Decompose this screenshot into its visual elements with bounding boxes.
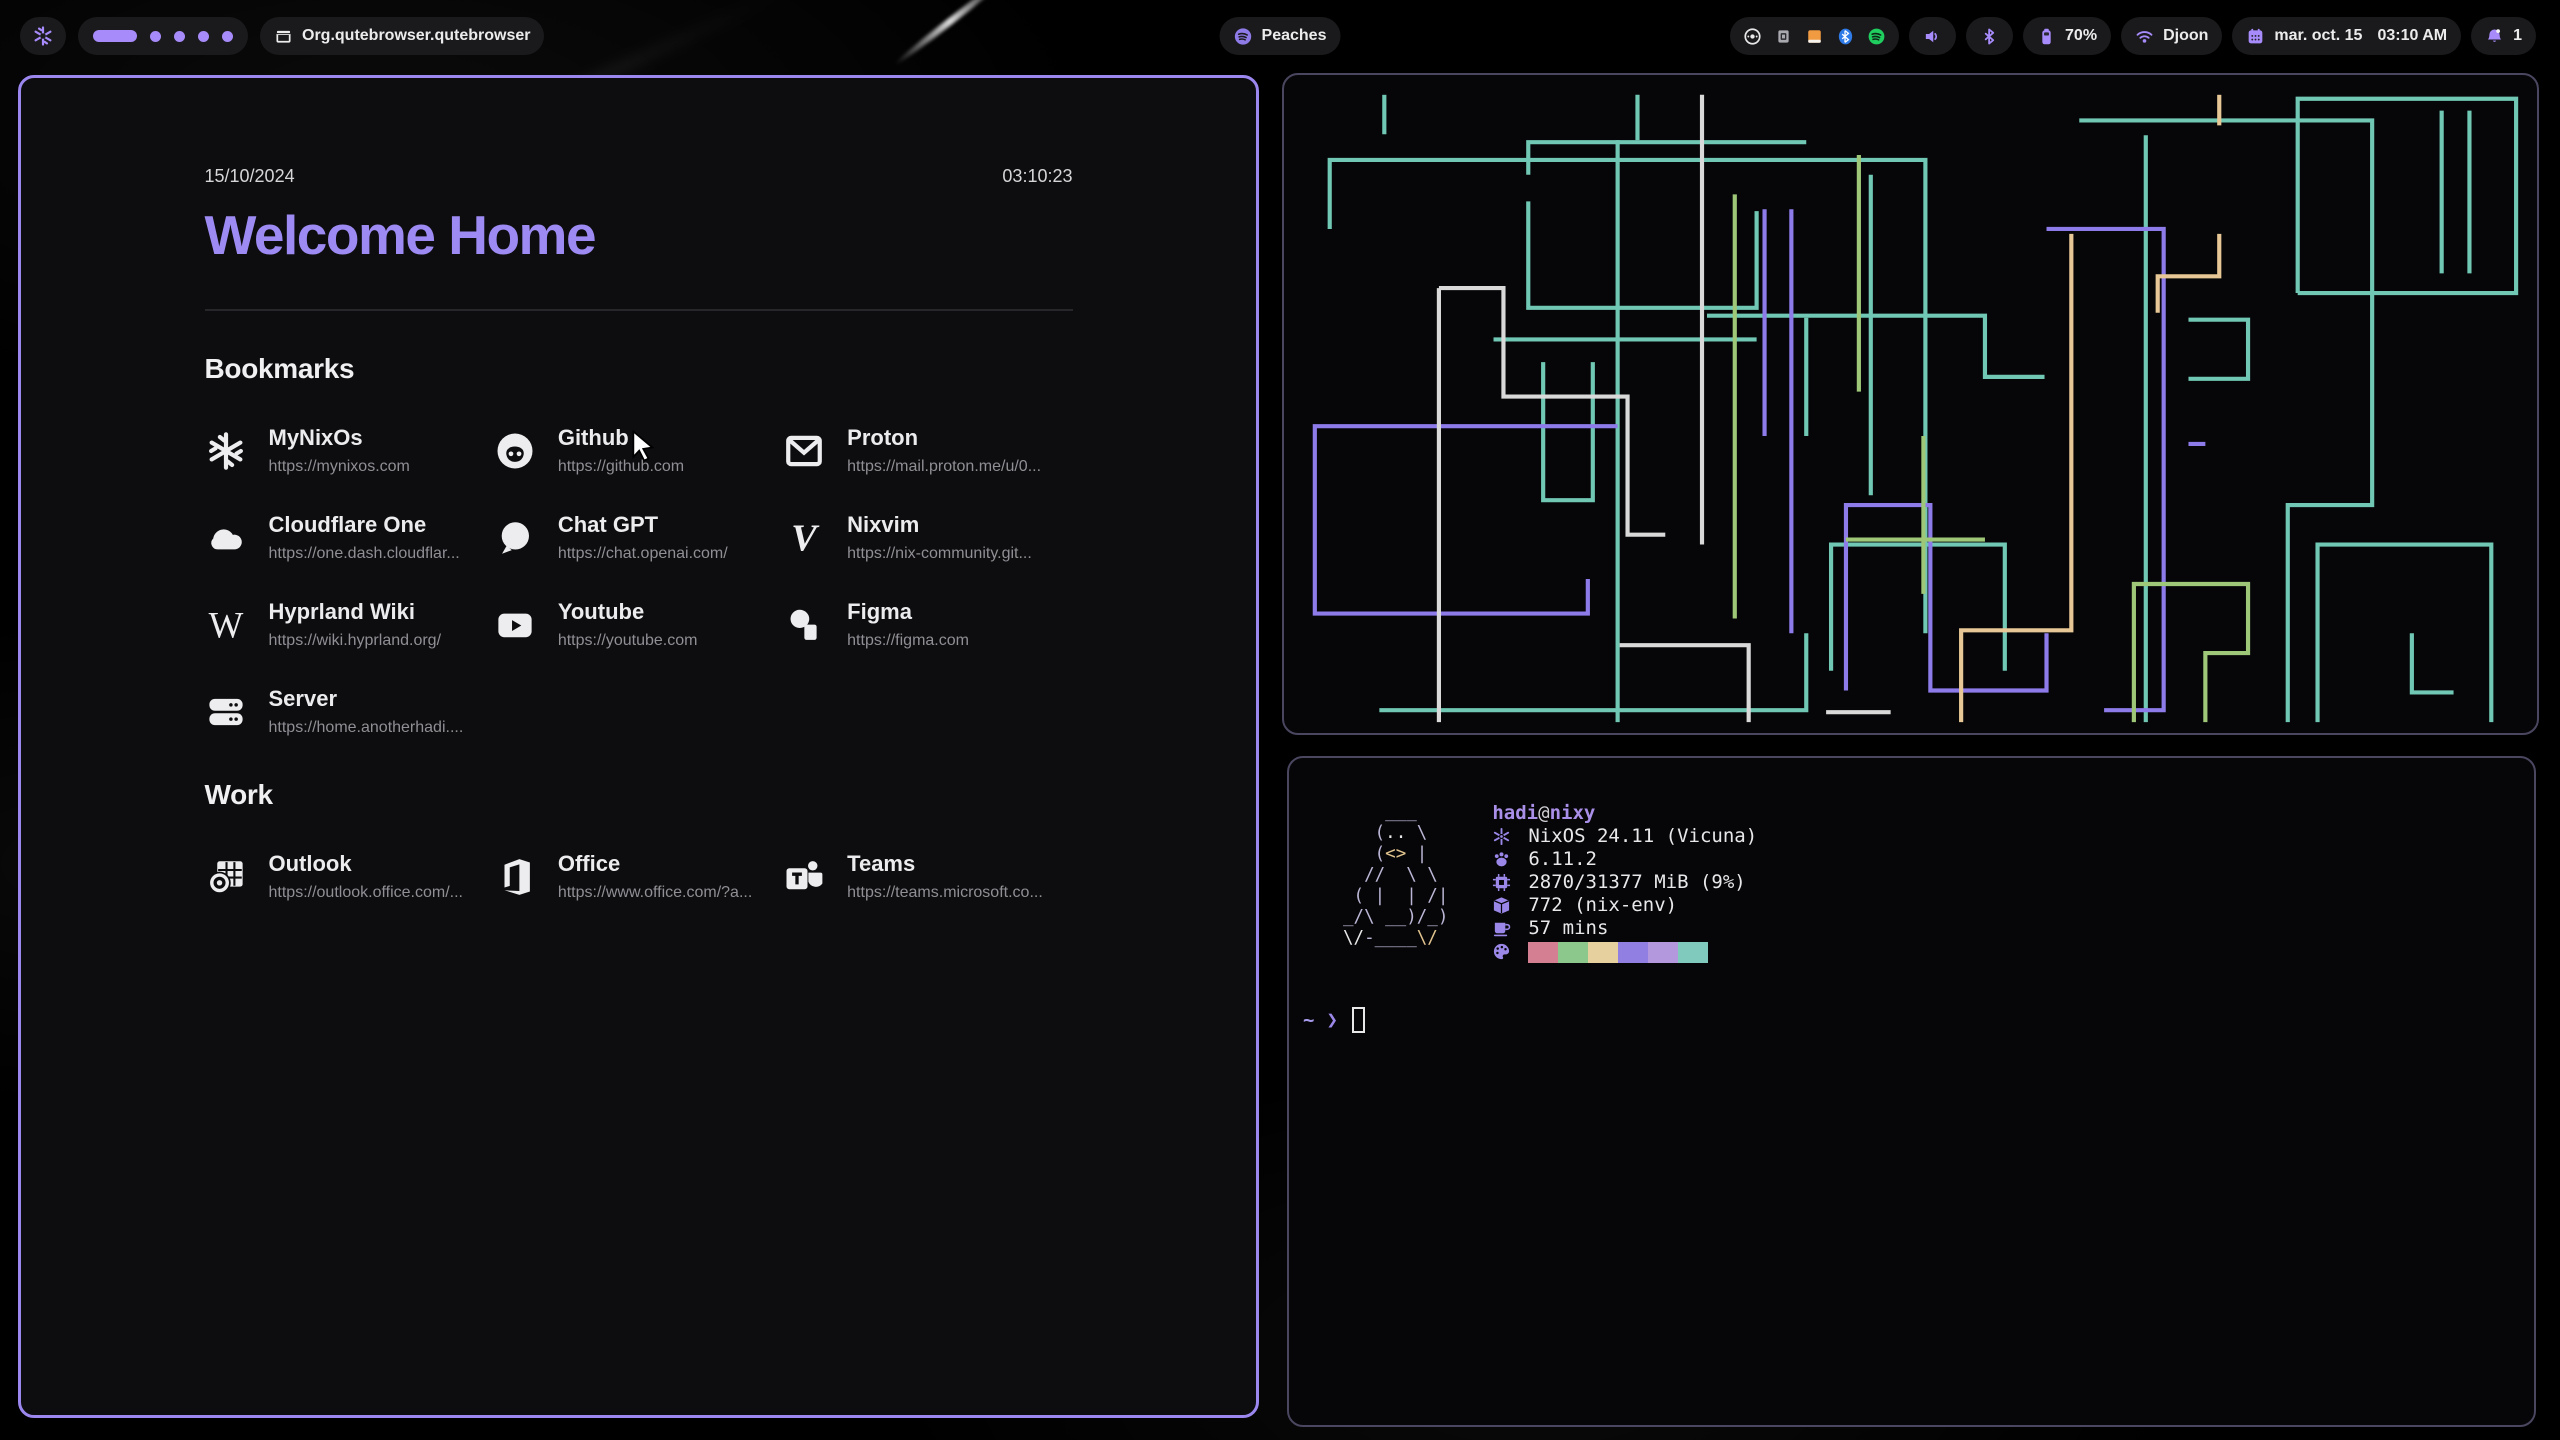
network-widget[interactable]: Djoon — [2121, 17, 2222, 55]
bluetooth-icon — [1980, 27, 1999, 46]
fastfetch-output: ___ (.. \ (<> | // \ \ ( | | /|_/\ __)/_… — [1343, 802, 2534, 963]
qutebrowser-window[interactable]: 15/10/2024 03:10:23 Welcome Home Bookmar… — [18, 75, 1259, 1418]
calendar-icon — [2246, 27, 2265, 46]
divider — [205, 309, 1073, 311]
status-bar: Org.qutebrowser.qutebrowser Peaches 70% — [0, 10, 2560, 62]
teams-icon — [783, 856, 825, 898]
fetch-row-palette — [1492, 940, 1757, 963]
figma-icon — [783, 604, 825, 646]
cup-icon — [1492, 919, 1511, 938]
bookmark-name: Figma — [847, 599, 969, 625]
pipes-art — [1290, 81, 2531, 727]
fetch-row-cup: 57 mins — [1492, 917, 1757, 940]
notification-count: 1 — [2513, 27, 2522, 45]
fetch-value: 6.11.2 — [1528, 848, 1597, 871]
bookmark-url: https://one.dash.cloudflar... — [269, 545, 460, 563]
bookmark-link-hyprland-wiki[interactable]: Hyprland Wikihttps://wiki.hyprland.org/ — [205, 599, 494, 650]
bluetooth-tray-icon[interactable] — [1836, 27, 1855, 46]
bookmark-link-figma[interactable]: Figmahttps://figma.com — [783, 599, 1072, 650]
workspace-4[interactable] — [198, 31, 209, 42]
fetch-terminal-window[interactable]: ___ (.. \ (<> | // \ \ ( | | /|_/\ __)/_… — [1287, 756, 2536, 1427]
wiki-icon — [205, 604, 247, 646]
bookmark-link-proton[interactable]: Protonhttps://mail.proton.me/u/0... — [783, 425, 1072, 476]
bookmark-name: Office — [558, 851, 752, 877]
palette-swatch — [1588, 942, 1618, 963]
bell-icon — [2485, 27, 2504, 46]
bookmark-name: Proton — [847, 425, 1041, 451]
chat-icon — [494, 517, 536, 559]
battery-widget[interactable]: 70% — [2023, 17, 2111, 55]
terminal-color-palette — [1528, 942, 1708, 963]
bluetooth-widget[interactable] — [1966, 17, 2013, 55]
bookmark-url: https://wiki.hyprland.org/ — [269, 632, 442, 650]
fetch-value: NixOS 24.11 (Vicuna) — [1528, 825, 1757, 848]
notifications-widget[interactable]: 1 — [2471, 17, 2536, 55]
nixvim-icon — [783, 517, 825, 559]
mail-icon — [783, 430, 825, 472]
bookmark-name: MyNixOs — [269, 425, 410, 451]
bookmark-url: https://figma.com — [847, 632, 969, 650]
nixos-logo-icon — [32, 25, 54, 47]
palette-swatch — [1558, 942, 1588, 963]
workspaces-indicator[interactable] — [78, 17, 248, 55]
bookmark-name: Youtube — [558, 599, 698, 625]
network-label: Djoon — [2163, 27, 2208, 45]
bookmark-link-mynixos[interactable]: MyNixOshttps://mynixos.com — [205, 425, 494, 476]
bookmark-name: Server — [269, 686, 464, 712]
bookmark-link-chat-gpt[interactable]: Chat GPThttps://chat.openai.com/ — [494, 512, 783, 563]
bookmark-link-office[interactable]: Officehttps://www.office.com/?a... — [494, 851, 783, 902]
bookmark-name: Github — [558, 425, 684, 451]
bookmark-link-cloudflare-one[interactable]: Cloudflare Onehttps://one.dash.cloudflar… — [205, 512, 494, 563]
bookmark-name: Cloudflare One — [269, 512, 460, 538]
fetch-row-kernel: 6.11.2 — [1492, 848, 1757, 871]
applet-tray-icon[interactable] — [1774, 27, 1793, 46]
workspace-1[interactable] — [93, 30, 137, 42]
clock-time: 03:10 AM — [2377, 27, 2447, 45]
bookmark-name: Teams — [847, 851, 1043, 877]
shell-prompt[interactable]: ~ ❯ — [1303, 1007, 2534, 1033]
workspace-5[interactable] — [222, 31, 233, 42]
fetch-row-mem: 2870/31377 MiB (9%) — [1492, 871, 1757, 894]
page-title: Welcome Home — [205, 203, 1073, 267]
office-icon — [494, 856, 536, 898]
bookmark-name: Outlook — [269, 851, 463, 877]
speaker-icon — [1923, 27, 1942, 46]
bookmark-url: https://teams.microsoft.co... — [847, 884, 1043, 902]
server-icon — [205, 691, 247, 733]
clock-widget[interactable]: mar. oct. 15 03:10 AM — [2232, 17, 2461, 55]
bookmark-name: Nixvim — [847, 512, 1032, 538]
files-tray-icon[interactable] — [1805, 27, 1824, 46]
workspace-3[interactable] — [174, 31, 185, 42]
bookmark-link-nixvim[interactable]: Nixvimhttps://nix-community.git... — [783, 512, 1072, 563]
bookmark-url: https://chat.openai.com/ — [558, 545, 728, 563]
fetch-value: 2870/31377 MiB (9%) — [1528, 871, 1745, 894]
snow-icon — [1492, 827, 1511, 846]
spotify-tray-icon[interactable] — [1867, 27, 1886, 46]
system-tray — [1730, 17, 1899, 55]
kernel-icon — [1492, 850, 1511, 869]
nixos-icon — [205, 430, 247, 472]
volume-widget[interactable] — [1909, 17, 1956, 55]
bookmark-url: https://mynixos.com — [269, 458, 410, 476]
mem-icon — [1492, 873, 1511, 892]
bookmark-link-server[interactable]: Serverhttps://home.anotherhadi.... — [205, 686, 494, 737]
bookmark-url: https://nix-community.git... — [847, 545, 1032, 563]
tux-ascii-art: ___ (.. \ (<> | // \ \ ( | | /|_/\ __)/_… — [1343, 802, 1448, 963]
window-icon — [274, 27, 293, 46]
bookmark-name: Chat GPT — [558, 512, 728, 538]
bookmark-url: https://www.office.com/?a... — [558, 884, 752, 902]
wifi-icon — [2135, 27, 2154, 46]
terminal-cursor — [1352, 1007, 1365, 1033]
fetch-row-pkg: 772 (nix-env) — [1492, 894, 1757, 917]
mouse-cursor — [630, 430, 660, 462]
bookmark-url: https://github.com — [558, 458, 684, 476]
startpage-time: 03:10:23 — [1002, 166, 1072, 187]
section-heading-bookmarks: Bookmarks — [205, 353, 1073, 385]
palette-swatch — [1528, 942, 1558, 963]
fetch-value: 772 (nix-env) — [1528, 894, 1677, 917]
bookmark-link-teams[interactable]: Teamshttps://teams.microsoft.co... — [783, 851, 1072, 902]
prompt-symbol: ❯ — [1326, 1009, 1337, 1031]
github-icon — [494, 430, 536, 472]
now-playing-label: Peaches — [1262, 27, 1327, 45]
section-heading-work: Work — [205, 779, 1073, 811]
battery-icon — [2037, 27, 2056, 46]
palette-icon — [1492, 942, 1511, 961]
palette-swatch — [1618, 942, 1648, 963]
bookmark-url: https://outlook.office.com/... — [269, 884, 463, 902]
window-title-label: Org.qutebrowser.qutebrowser — [302, 27, 530, 45]
now-playing-widget[interactable]: Peaches — [1220, 17, 1341, 55]
fetch-user-host: hadi@nixy — [1492, 802, 1757, 825]
bookmark-url: https://mail.proton.me/u/0... — [847, 458, 1041, 476]
palette-swatch — [1648, 942, 1678, 963]
fetch-row-snow: NixOS 24.11 (Vicuna) — [1492, 825, 1757, 848]
start-page: 15/10/2024 03:10:23 Welcome Home Bookmar… — [205, 78, 1073, 902]
launcher-button[interactable] — [20, 17, 66, 55]
prompt-directory: ~ — [1303, 1009, 1314, 1031]
youtube-icon — [494, 604, 536, 646]
cloud-icon — [205, 517, 247, 559]
palette-swatch — [1678, 942, 1708, 963]
bookmark-link-outlook[interactable]: Outlookhttps://outlook.office.com/... — [205, 851, 494, 902]
bookmark-url: https://youtube.com — [558, 632, 698, 650]
clock-date: mar. oct. 15 — [2274, 27, 2362, 45]
startpage-date: 15/10/2024 — [205, 166, 295, 187]
bookmark-link-youtube[interactable]: Youtubehttps://youtube.com — [494, 599, 783, 650]
bookmark-name: Hyprland Wiki — [269, 599, 442, 625]
spotify-icon — [1234, 27, 1253, 46]
outlook-icon — [205, 856, 247, 898]
workspace-2[interactable] — [150, 31, 161, 42]
bookmark-url: https://home.anotherhadi.... — [269, 719, 464, 737]
active-window-title[interactable]: Org.qutebrowser.qutebrowser — [260, 17, 544, 55]
fetch-value: 57 mins — [1528, 917, 1608, 940]
disc-tray-icon[interactable] — [1743, 27, 1762, 46]
pkg-icon — [1492, 896, 1511, 915]
battery-label: 70% — [2065, 27, 2097, 45]
pipes-terminal-window[interactable] — [1282, 73, 2539, 735]
